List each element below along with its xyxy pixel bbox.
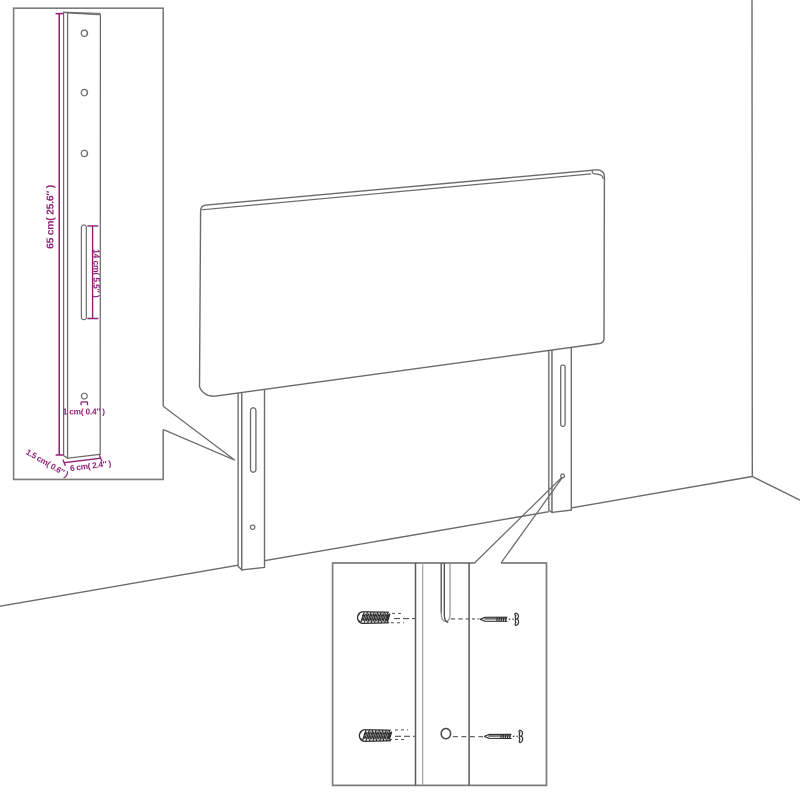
- svg-text:1 cm( 0.4″ ): 1 cm( 0.4″ ): [63, 406, 106, 416]
- svg-text:14 cm( 5.5″ ): 14 cm( 5.5″ ): [91, 249, 101, 298]
- svg-text:65 cm( 25.6″ ): 65 cm( 25.6″ ): [45, 185, 56, 249]
